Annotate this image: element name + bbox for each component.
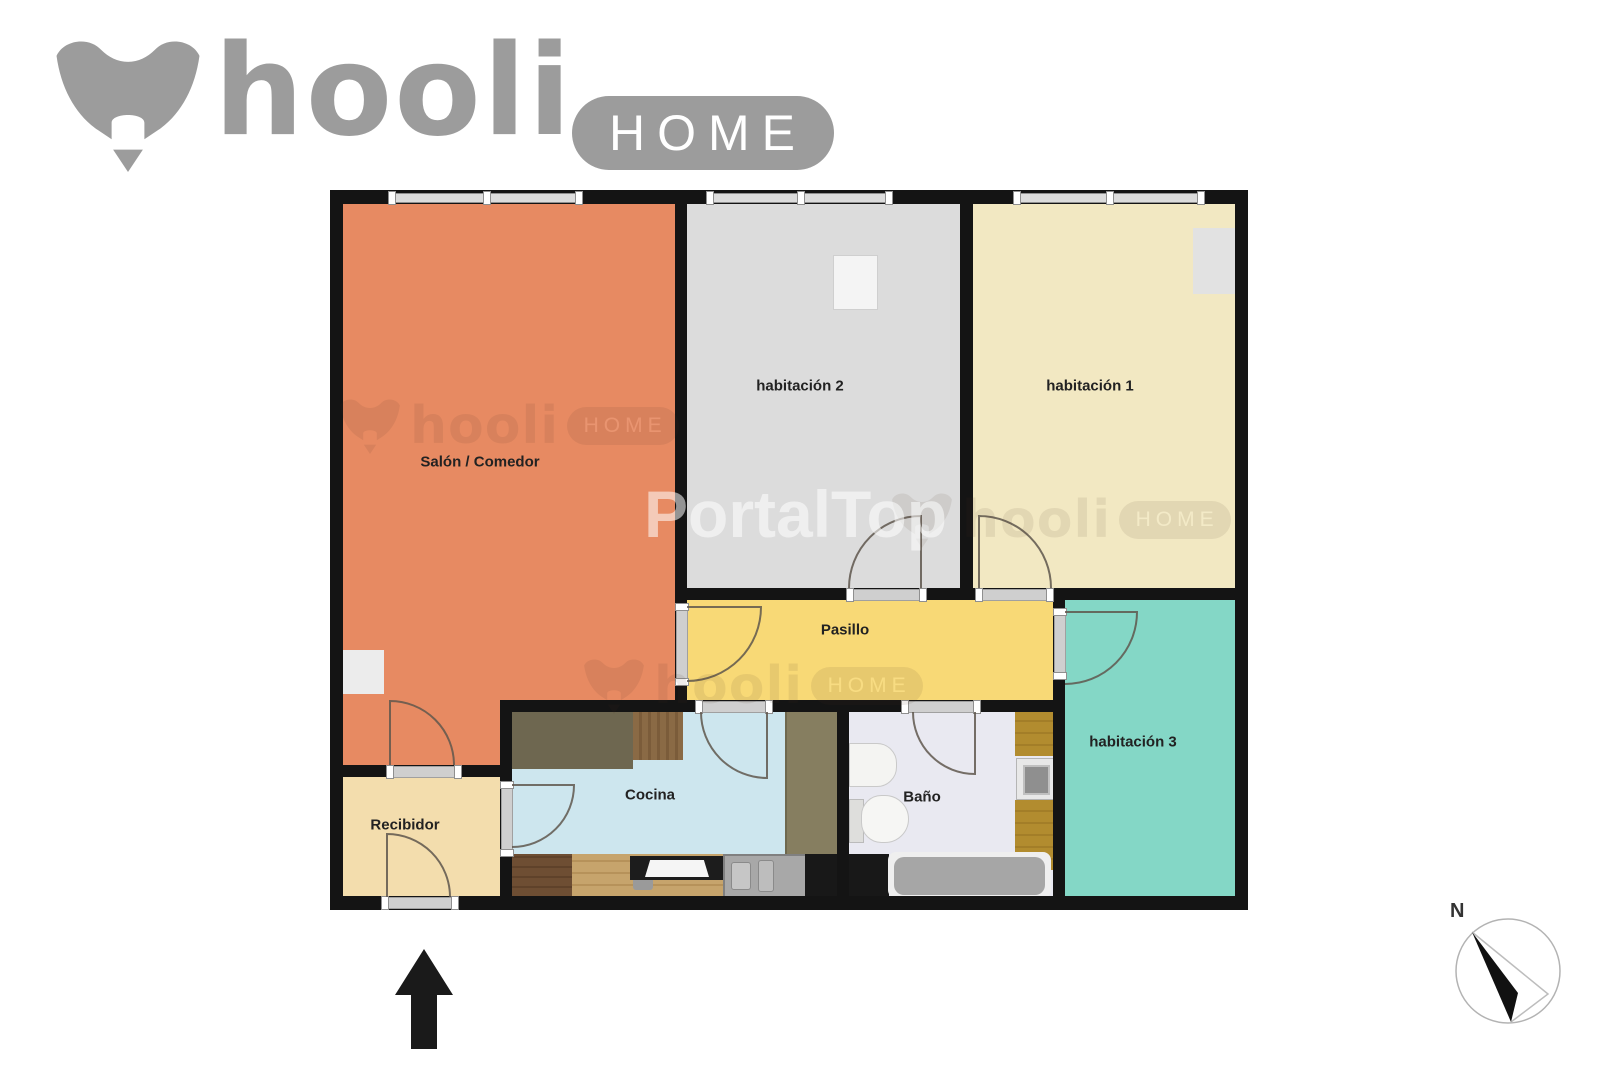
- window-salon: [389, 193, 582, 203]
- wall-cocina-bano: [837, 712, 849, 910]
- watermark-brand: hooli: [410, 400, 559, 452]
- wall-bottom: [330, 896, 1248, 910]
- window-tick: [885, 191, 893, 205]
- threshold-entrance: [383, 897, 457, 909]
- bidet: [849, 743, 897, 787]
- threshold-pasillo-hab3: [1054, 610, 1066, 678]
- watermark-home-label: HOME: [580, 414, 667, 438]
- kitchen-counter-dark: [512, 854, 572, 896]
- watermark-brand: hooli: [654, 660, 803, 712]
- brand-wordmark: hooli: [214, 28, 573, 154]
- label-habitacion1: habitación 1: [1046, 378, 1134, 395]
- jamb-tick: [454, 765, 462, 779]
- watermark-hooli-1: hooli HOME: [338, 398, 679, 454]
- window-tick: [388, 191, 396, 205]
- jamb-tick: [846, 588, 854, 602]
- threshold-pasillo-hab2: [848, 589, 925, 601]
- bath-sink-basin: [1023, 765, 1050, 795]
- jamb-tick: [1053, 608, 1067, 616]
- jamb-tick: [1053, 672, 1067, 680]
- label-recibidor: Recibidor: [370, 817, 439, 834]
- fox-logo-icon: [338, 398, 402, 454]
- salon-wall-unit: [343, 650, 384, 694]
- watermark-brand: hooli: [962, 494, 1111, 546]
- habitacion2-skylight: [833, 255, 878, 310]
- window-habitacion1: [1014, 193, 1204, 203]
- window-tick: [797, 191, 805, 205]
- jamb-tick: [973, 700, 981, 714]
- label-cocina: Cocina: [625, 787, 675, 804]
- kitchen-sink: [645, 860, 709, 877]
- jamb-tick: [500, 849, 514, 857]
- label-habitacion2: habitación 2: [756, 378, 844, 395]
- watermark-home-badge: HOME: [811, 667, 923, 705]
- habitacion1-closet: [1193, 228, 1237, 294]
- floorplan-page: hooli HOME: [0, 0, 1620, 1080]
- jamb-tick: [975, 588, 983, 602]
- jamb-tick: [1046, 588, 1054, 602]
- fox-logo-icon: [582, 658, 646, 714]
- watermark-hooli-3: hooli HOME: [582, 658, 923, 714]
- compass-icon: N: [1420, 865, 1600, 1045]
- fox-logo-icon: [52, 38, 204, 172]
- wall-right: [1235, 190, 1248, 910]
- jamb-tick: [919, 588, 927, 602]
- bath-cabinet-upper: [1015, 712, 1053, 756]
- jamb-tick: [500, 781, 514, 789]
- compass-north-label: N: [1450, 900, 1464, 922]
- window-tick: [706, 191, 714, 205]
- kitchen-stove-handle: [731, 862, 751, 890]
- watermark-home-badge: HOME: [1119, 501, 1231, 539]
- label-habitacion3: habitación 3: [1089, 734, 1177, 751]
- window-habitacion2: [707, 193, 892, 203]
- window-tick: [483, 191, 491, 205]
- window-tick: [1197, 191, 1205, 205]
- label-salon: Salón / Comedor: [420, 454, 539, 471]
- room-recibidor: [343, 777, 500, 896]
- jamb-tick: [451, 896, 459, 910]
- watermark-home-badge: HOME: [567, 407, 679, 445]
- watermark-portaltop: PortalTop: [644, 476, 947, 552]
- threshold-pasillo-hab1: [977, 589, 1052, 601]
- jamb-tick: [386, 765, 394, 779]
- jamb-tick: [675, 603, 689, 611]
- toilet-bowl: [861, 795, 909, 843]
- threshold-salon-recibidor: [388, 766, 460, 778]
- wall-pasillo-north: [675, 588, 1235, 600]
- window-tick: [1106, 191, 1114, 205]
- kitchen-stove-tray: [758, 860, 774, 892]
- bathtub-basin: [894, 857, 1045, 895]
- brand-home-badge: HOME: [572, 96, 834, 170]
- threshold-recibidor-cocina: [501, 783, 513, 855]
- kitchen-counter-top: [512, 712, 633, 769]
- brand-logo: hooli HOME: [0, 0, 900, 190]
- wall-left: [330, 190, 343, 910]
- brand-home-badge-label: HOME: [599, 104, 807, 162]
- watermark-home-label: HOME: [1132, 508, 1219, 532]
- window-tick: [575, 191, 583, 205]
- jamb-tick: [381, 896, 389, 910]
- window-tick: [1013, 191, 1021, 205]
- label-pasillo: Pasillo: [821, 622, 869, 639]
- entrance-arrow-icon: [385, 945, 463, 1053]
- watermark-home-label: HOME: [824, 674, 911, 698]
- label-bano: Baño: [903, 789, 941, 806]
- kitchen-wood-cabinet: [633, 712, 683, 760]
